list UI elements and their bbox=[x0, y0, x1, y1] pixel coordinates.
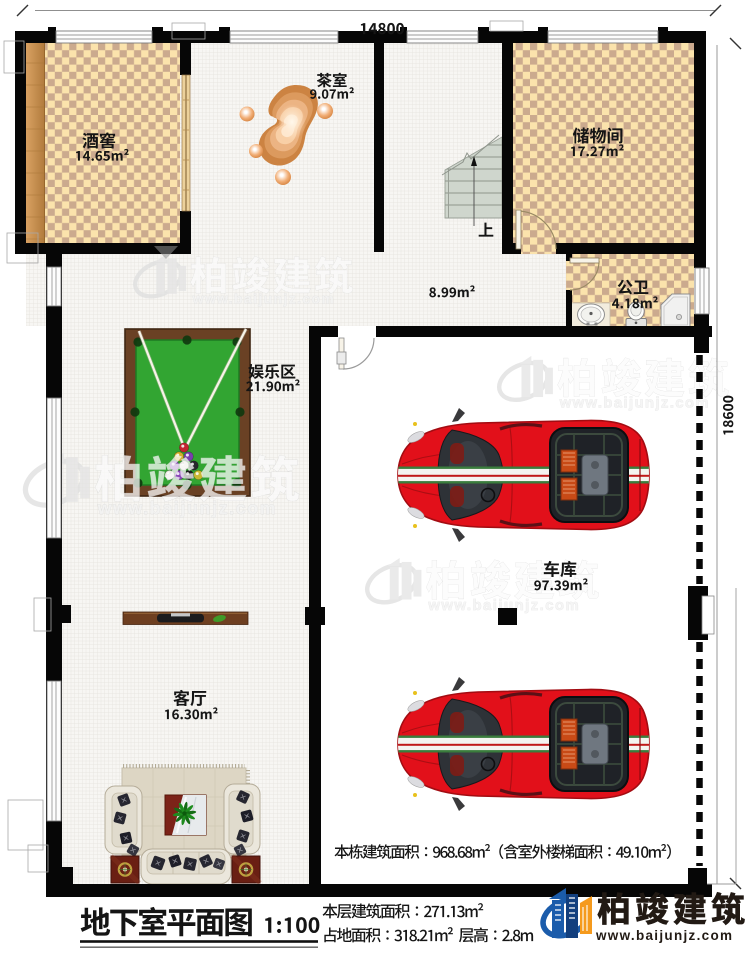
svg-text:www.baijunjz.com: www.baijunjz.com bbox=[595, 928, 733, 943]
